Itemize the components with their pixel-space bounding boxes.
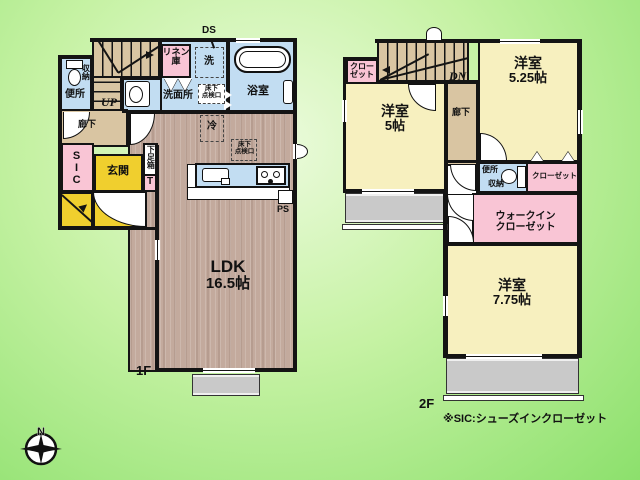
- window-775-south: [466, 354, 542, 359]
- label-washer: 洗: [204, 57, 214, 68]
- label-toilet-1f: 便所: [65, 90, 85, 101]
- bath-door-mark-a: [224, 90, 232, 100]
- wall-1f-right: [293, 38, 297, 372]
- vanity-sink: [125, 81, 150, 107]
- door-arc-stairwell-top: [426, 27, 442, 40]
- bath-door-mark-b: [224, 100, 232, 110]
- label-floor-2f: 2F: [419, 397, 434, 411]
- label-closet-2f-b: クローゼット: [532, 172, 577, 180]
- wall-2f-west-lower: [443, 192, 447, 358]
- wall-2f-closet-top: [343, 57, 378, 60]
- label-room5jo-name: 洋室: [350, 104, 440, 119]
- kitchen-counter-rim-bottom: [187, 187, 290, 200]
- terrace-1f: [192, 374, 260, 396]
- wall-1f-toilet-top: [58, 55, 93, 58]
- toilet-2f-tank: [517, 166, 526, 188]
- label-wic-line1: ウォークイン: [496, 211, 556, 222]
- stove-burner-right: [273, 171, 280, 178]
- label-room775jo-name: 洋室: [467, 278, 557, 293]
- compass-bird-arrow: [20, 434, 62, 464]
- window-525-east: [578, 110, 583, 134]
- stairs-2f-arrow: [382, 66, 390, 74]
- bathtub-inner-line: [239, 51, 286, 68]
- door-arc-ldk-back: [297, 144, 308, 159]
- label-sic: SIC: [70, 150, 82, 186]
- label-washroom: 洗面所: [163, 91, 193, 102]
- label-closet-2f-a-line2: ゼット: [350, 70, 374, 79]
- vanity-basin: [129, 86, 143, 103]
- wall-2f-right: [578, 39, 582, 358]
- label-genkan: 玄関: [107, 166, 129, 178]
- closet-b-door-mark-a: [531, 152, 543, 161]
- stove: [256, 166, 286, 185]
- balcony-south-rail: [443, 395, 584, 401]
- label-inspection-wash: 床下 点検口: [199, 86, 224, 100]
- compass-north-arrow: N: [18, 424, 64, 470]
- wall-1f-annex-left: [58, 55, 61, 230]
- label-room775jo-area: 7.75帖: [467, 293, 557, 307]
- label-fridge: 冷: [207, 122, 217, 133]
- balcony-2f-south: [446, 358, 579, 394]
- label-room775jo: 洋室 7.75帖: [467, 278, 557, 306]
- label-toilet-storage-1f: 収納: [81, 64, 89, 80]
- label-inspection-ldk-line2: 点検口: [235, 148, 255, 155]
- hall-2f: [446, 82, 478, 166]
- sic-footnote: ※SIC:シューズインクローゼット: [443, 414, 607, 426]
- balcony-2f-west: [345, 193, 444, 223]
- floorplan-canvas: DS リネン 庫 洗 浴室 洗面所 床下 点検口 収納 便所 UP 廊下 SIC…: [0, 0, 640, 480]
- label-room525jo-area: 5.25帖: [483, 71, 573, 85]
- window-bath-top: [236, 38, 260, 43]
- label-linen-line2: 庫: [171, 56, 180, 66]
- label-room525jo: 洋室 5.25帖: [483, 56, 573, 84]
- label-ldk-name: LDK: [188, 258, 268, 276]
- wall-1f-annex-bottom: [58, 227, 159, 230]
- label-bath: 浴室: [247, 86, 269, 98]
- label-ldk: LDK 16.5帖: [188, 258, 268, 292]
- label-toilet-storage-2f: 収納: [488, 180, 504, 188]
- stove-burner-left: [261, 171, 268, 178]
- label-ldk-area: 16.5帖: [188, 276, 268, 292]
- wall-2f-top: [375, 39, 582, 43]
- label-ds: DS: [202, 26, 216, 37]
- wall-2f-toilet-row-top: [446, 160, 579, 163]
- label-up: UP: [101, 96, 117, 109]
- label-linen: リネン 庫: [161, 48, 191, 67]
- label-inspection-wash-line2: 点検口: [202, 92, 222, 99]
- toilet-1f-bowl: [68, 69, 81, 86]
- window-5jo-west: [342, 100, 347, 122]
- label-wic: ウォークイン クローゼット: [478, 212, 573, 233]
- label-room525jo-name: 洋室: [483, 56, 573, 71]
- closet-b-door-mark-b: [562, 152, 574, 161]
- window-775-west: [443, 296, 448, 316]
- label-room5jo: 洋室 5帖: [350, 104, 440, 132]
- bathtub: [234, 46, 291, 73]
- label-shoebox: 下足箱: [146, 145, 154, 169]
- label-toilet-2f: 便所: [482, 166, 498, 174]
- kitchen-faucet: [221, 178, 230, 185]
- wall-1f-top: [90, 38, 297, 42]
- bath-counter: [283, 80, 293, 104]
- label-dn: DN: [449, 70, 466, 83]
- label-closet-2f-a: クロー ゼット: [346, 63, 378, 80]
- window-ldk-west: [155, 240, 160, 260]
- stove-burner-center: [268, 179, 273, 184]
- label-floor-1f: 1F: [136, 364, 151, 378]
- window-ldk-bottom: [203, 368, 255, 373]
- label-room5jo-area: 5帖: [350, 119, 440, 133]
- compass-n-label: N: [37, 426, 45, 438]
- label-shoebox-t: T: [147, 177, 153, 188]
- stairs-1f-arrow: [146, 51, 154, 59]
- balcony-west-rail: [342, 224, 448, 230]
- label-inspection-ldk: 床下 点検口: [232, 142, 257, 156]
- label-ps: PS: [277, 205, 289, 214]
- label-wic-line2: クローゼット: [496, 222, 556, 233]
- label-hall-1f: 廊下: [78, 120, 96, 129]
- label-hall-2f: 廊下: [452, 108, 470, 117]
- window-525-top: [500, 39, 540, 44]
- window-5jo-south: [362, 189, 414, 194]
- ps-shaft: [278, 190, 293, 204]
